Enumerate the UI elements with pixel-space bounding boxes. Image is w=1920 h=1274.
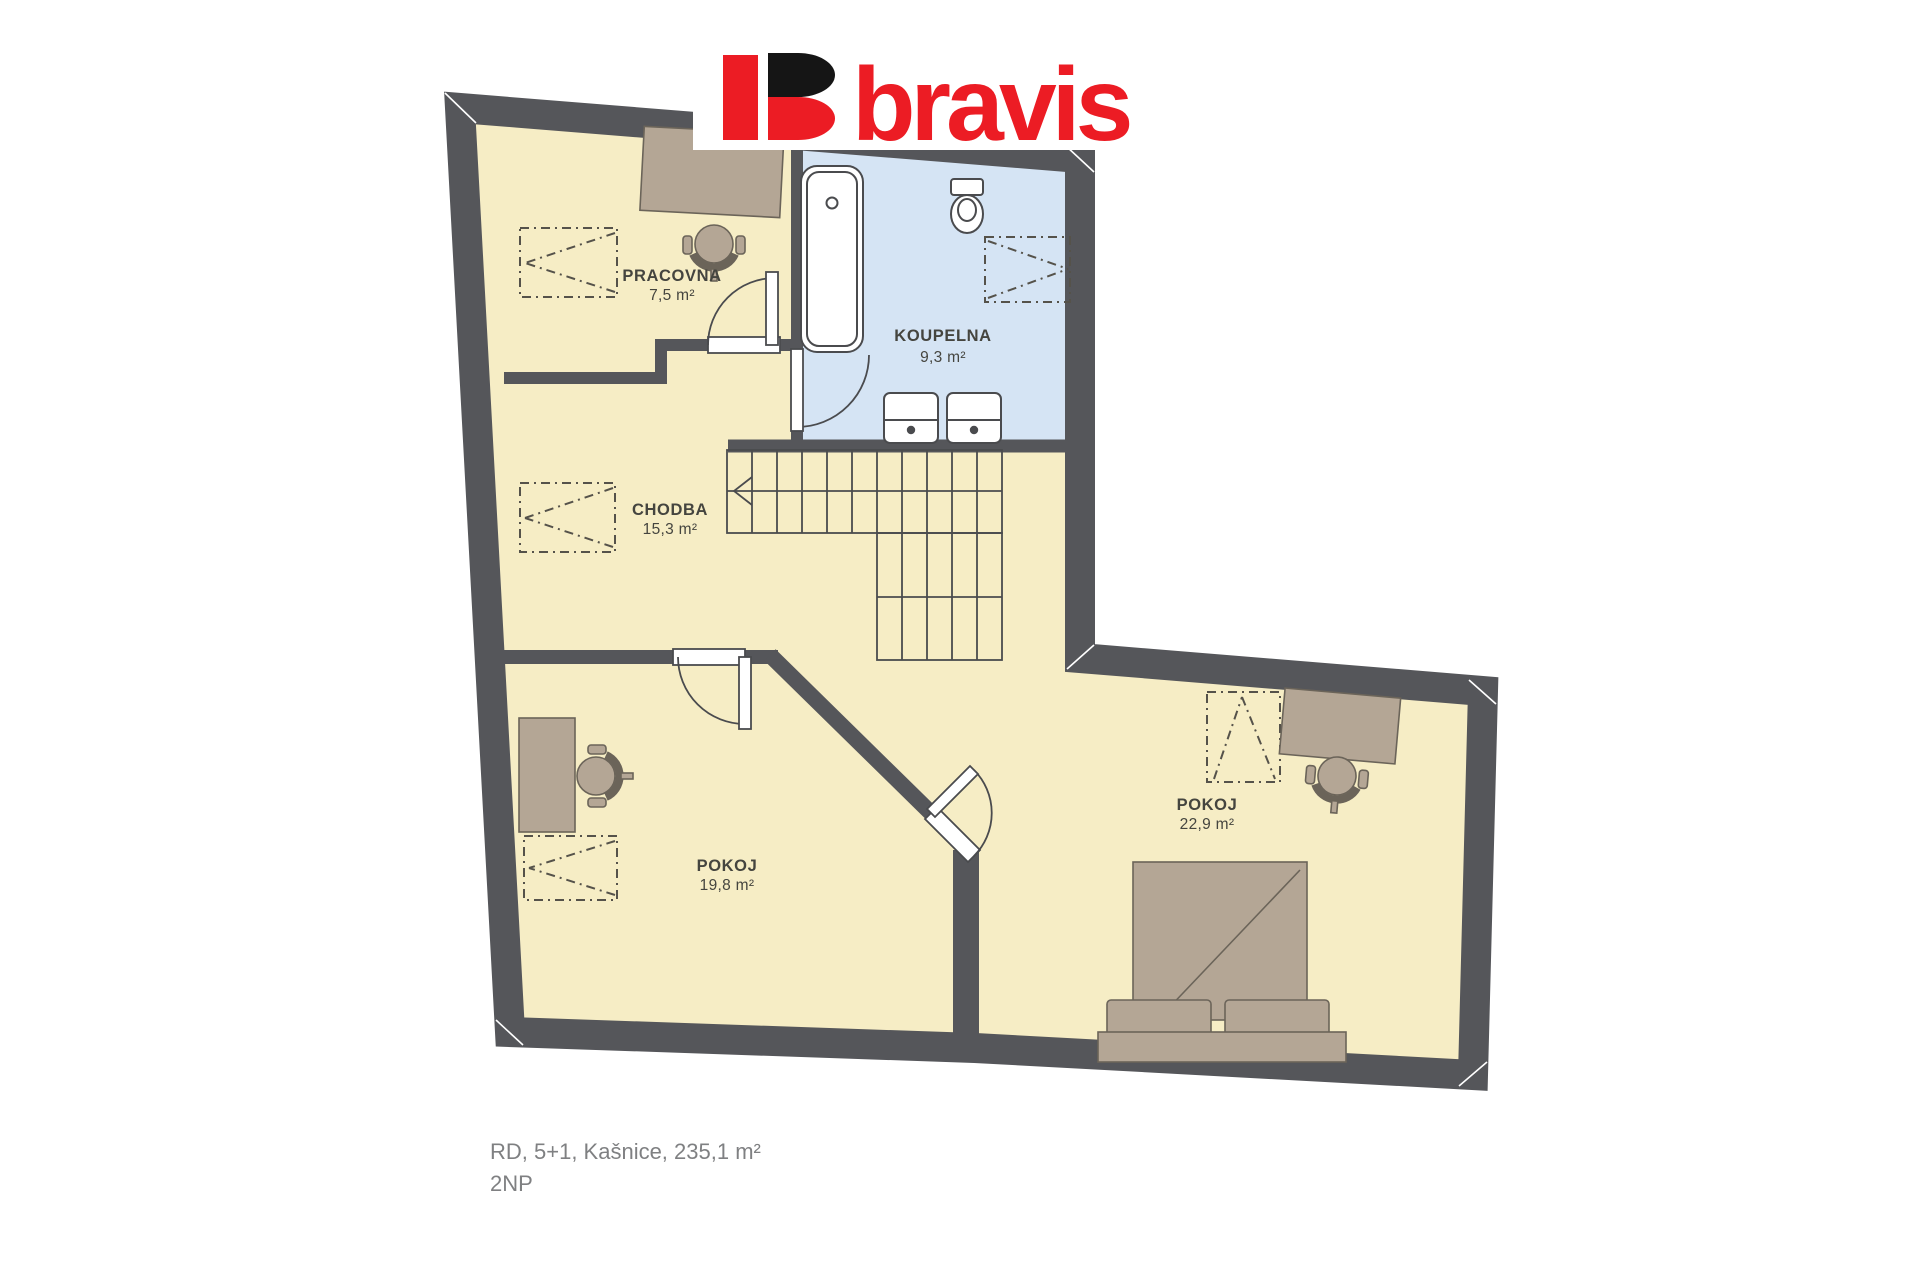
sink-icon [947,393,1001,443]
office-desk [1279,688,1400,764]
logo-mark-bar [723,55,758,140]
bedroom-left-door-opening [673,649,745,665]
bathtub-icon [801,166,863,352]
room-area-chodba: 15,3 m² [643,521,698,538]
floor-plan-canvas: PRACOVNA 7,5 m² KOUPELNA 9,3 m² CHODBA 1… [0,0,1920,1274]
room-label-koupelna: KOUPELNA [894,327,991,345]
room-area-koupelna: 9,3 m² [920,349,966,366]
room-label-pracovna: PRACOVNA [622,267,721,285]
brand-logo: bravis [693,36,1265,163]
bedroom-left-door-leaf [739,657,751,729]
floor-plan-page: PRACOVNA 7,5 m² KOUPELNA 9,3 m² CHODBA 1… [0,0,1920,1274]
room-label-chodba: CHODBA [632,501,708,519]
caption-line-2: 2NP [490,1171,533,1196]
room-area-pokoj-right: 22,9 m² [1180,816,1235,833]
room-label-pokoj-left: POKOJ [697,857,758,875]
caption-line-1: RD, 5+1, Kašnice, 235,1 m² [490,1139,761,1164]
bathroom-door-leaf [791,349,803,431]
room-area-pracovna: 7,5 m² [649,287,695,304]
sink-icon [884,393,938,443]
office-desk [519,718,575,832]
room-label-pokoj-right: POKOJ [1177,796,1238,814]
logo-text: bravis [852,47,1130,163]
toilet-icon [951,179,983,233]
pracovna-door-leaf [766,272,778,345]
room-area-pokoj-left: 19,8 m² [700,877,755,894]
